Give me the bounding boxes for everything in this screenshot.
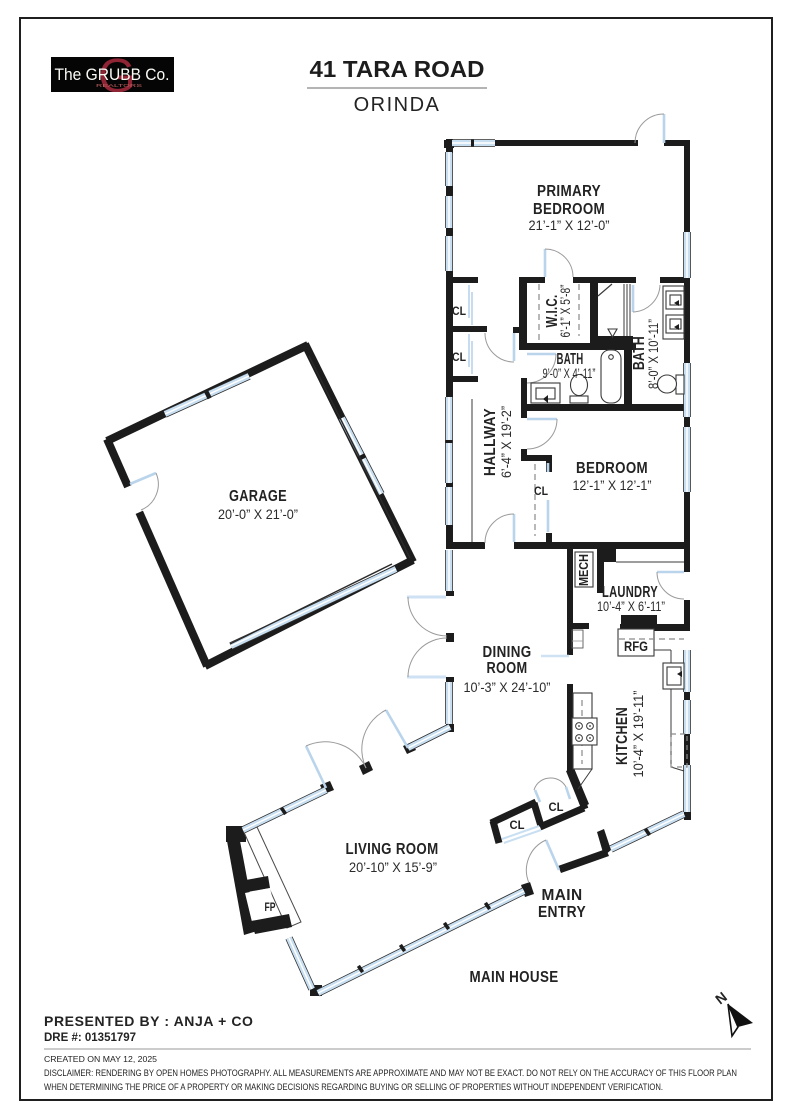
svg-text:REALTORS: REALTORS — [96, 83, 142, 88]
svg-text:ORINDA: ORINDA — [354, 94, 441, 116]
svg-text:10’-4” X 19’-11”: 10’-4” X 19’-11” — [631, 691, 646, 778]
svg-text:RFG: RFG — [624, 638, 648, 654]
svg-text:41 TARA ROAD: 41 TARA ROAD — [310, 56, 485, 82]
svg-text:MAIN: MAIN — [542, 887, 583, 904]
svg-text:LIVING ROOM: LIVING ROOM — [346, 841, 439, 858]
svg-text:CREATED ON MAY 12, 2025: CREATED ON MAY 12, 2025 — [44, 1054, 157, 1064]
svg-text:CL: CL — [534, 484, 548, 498]
svg-text:CL: CL — [549, 800, 564, 814]
svg-text:HALLWAY: HALLWAY — [482, 408, 499, 476]
svg-text:21’-1” X 12’-0”: 21’-1” X 12’-0” — [529, 218, 610, 233]
svg-text:PRESENTED BY : ANJA + CO: PRESENTED BY : ANJA + CO — [44, 1013, 254, 1029]
svg-text:ROOM: ROOM — [487, 660, 528, 677]
svg-text:CL: CL — [510, 818, 525, 832]
svg-text:DINING: DINING — [483, 644, 532, 661]
svg-text:CL: CL — [452, 350, 466, 364]
svg-text:20’-10” X 15’-9”: 20’-10” X 15’-9” — [349, 860, 437, 875]
svg-text:10’-3” X 24’-10”: 10’-3” X 24’-10” — [464, 680, 551, 695]
svg-text:BEDROOM: BEDROOM — [533, 201, 605, 218]
svg-text:6’-4” X 19’-2”: 6’-4” X 19’-2” — [499, 406, 514, 478]
svg-text:WHEN DETERMINING THE PRICE OF: WHEN DETERMINING THE PRICE OF A PROPERTY… — [44, 1082, 663, 1092]
svg-text:KITCHEN: KITCHEN — [614, 707, 631, 765]
svg-text:12’-1” X 12’-1”: 12’-1” X 12’-1” — [573, 478, 652, 493]
svg-text:DISCLAIMER: RENDERING BY OPEN: DISCLAIMER: RENDERING BY OPEN HOMES PHOT… — [44, 1068, 737, 1078]
svg-text:GARAGE: GARAGE — [229, 488, 287, 505]
svg-text:MECH: MECH — [576, 554, 591, 586]
svg-text:9’-0” X 4’-11”: 9’-0” X 4’-11” — [543, 366, 596, 381]
svg-text:6’-1” X 5’-8”: 6’-1” X 5’-8” — [558, 285, 573, 338]
svg-text:CL: CL — [452, 304, 466, 318]
svg-text:10’-4” X 6’-11”: 10’-4” X 6’-11” — [597, 599, 665, 614]
svg-text:PRIMARY: PRIMARY — [537, 183, 601, 200]
svg-text:FP: FP — [265, 900, 276, 914]
svg-text:BEDROOM: BEDROOM — [576, 460, 648, 477]
svg-text:8’-0” X 10’-11”: 8’-0” X 10’-11” — [646, 319, 661, 389]
svg-text:The GRUBB Co.: The GRUBB Co. — [55, 66, 170, 84]
svg-text:20’-0” X 21’-0”: 20’-0” X 21’-0” — [218, 507, 298, 522]
svg-text:MAIN HOUSE: MAIN HOUSE — [470, 969, 559, 986]
svg-text:ENTRY: ENTRY — [538, 904, 586, 921]
svg-text:DRE #: 01351797: DRE #: 01351797 — [44, 1032, 136, 1044]
